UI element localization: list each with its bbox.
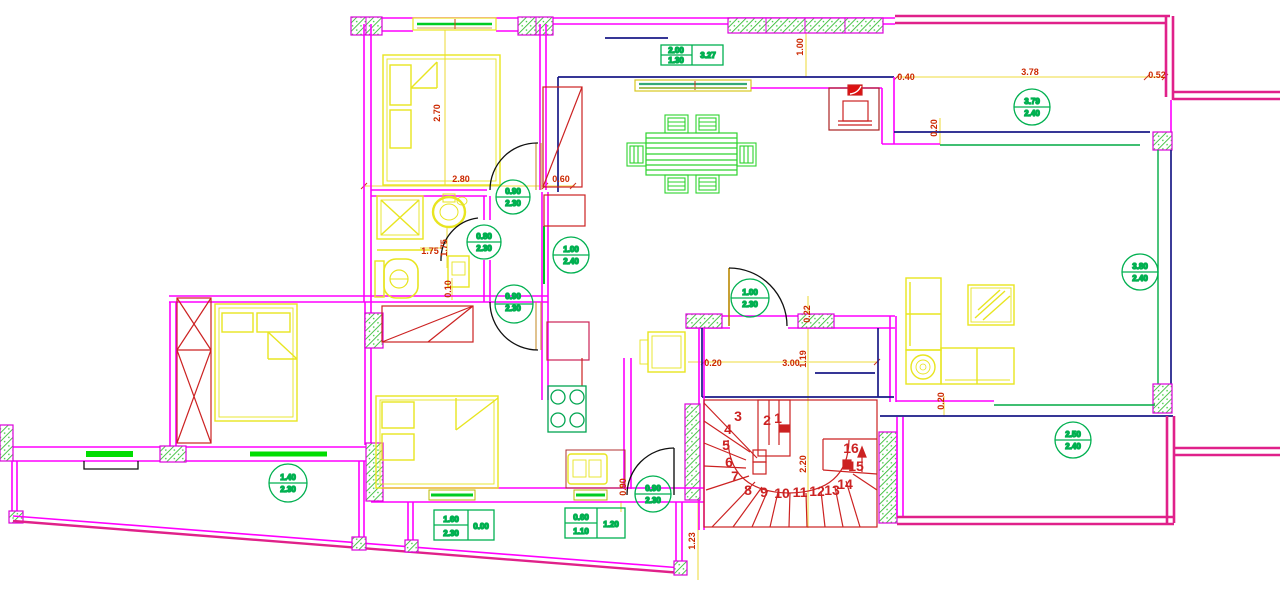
svg-text:1.23: 1.23 xyxy=(687,532,697,550)
svg-text:2.80: 2.80 xyxy=(452,174,470,184)
svg-text:1.20: 1.20 xyxy=(603,520,619,529)
svg-text:0.80: 0.80 xyxy=(476,232,492,241)
svg-text:2.30: 2.30 xyxy=(505,304,521,313)
svg-text:0.20: 0.20 xyxy=(936,392,946,410)
svg-text:2.30: 2.30 xyxy=(645,496,661,505)
svg-text:0.90: 0.90 xyxy=(645,484,661,493)
svg-text:1.30: 1.30 xyxy=(668,56,684,65)
svg-text:3.79: 3.79 xyxy=(1024,97,1040,106)
svg-text:4: 4 xyxy=(724,421,732,437)
svg-text:2.40: 2.40 xyxy=(1024,109,1040,118)
svg-text:2.30: 2.30 xyxy=(443,529,459,538)
svg-text:1.60: 1.60 xyxy=(443,515,459,524)
svg-text:1.00: 1.00 xyxy=(795,38,805,56)
svg-text:15: 15 xyxy=(848,458,864,474)
svg-text:0.20: 0.20 xyxy=(929,119,939,137)
svg-text:3.27: 3.27 xyxy=(700,51,716,60)
svg-text:2: 2 xyxy=(763,412,771,428)
svg-text:9: 9 xyxy=(760,484,768,500)
svg-text:3.78: 3.78 xyxy=(1021,67,1039,77)
svg-text:0.52: 0.52 xyxy=(1148,70,1166,80)
svg-text:12: 12 xyxy=(809,483,825,499)
svg-text:2.50: 2.50 xyxy=(1065,430,1081,439)
svg-text:1.00: 1.00 xyxy=(563,245,579,254)
svg-text:0.40: 0.40 xyxy=(897,72,915,82)
svg-text:7: 7 xyxy=(731,468,739,484)
svg-text:1.75: 1.75 xyxy=(439,239,449,257)
svg-text:2.70: 2.70 xyxy=(432,104,442,122)
svg-text:5: 5 xyxy=(722,437,730,453)
svg-text:0.10: 0.10 xyxy=(443,280,453,298)
svg-text:3: 3 xyxy=(734,408,742,424)
svg-text:1: 1 xyxy=(774,410,782,426)
svg-text:2.20: 2.20 xyxy=(798,455,808,473)
svg-text:2.00: 2.00 xyxy=(668,46,684,55)
svg-text:0.22: 0.22 xyxy=(802,305,812,323)
svg-text:0.90: 0.90 xyxy=(505,187,521,196)
svg-text:0.90: 0.90 xyxy=(505,292,521,301)
svg-text:2.40: 2.40 xyxy=(563,257,579,266)
svg-text:2.30: 2.30 xyxy=(742,300,758,309)
svg-text:8: 8 xyxy=(744,482,752,498)
svg-text:1.40: 1.40 xyxy=(280,473,296,482)
svg-text:2.30: 2.30 xyxy=(280,485,296,494)
svg-text:0.20: 0.20 xyxy=(704,358,722,368)
svg-text:3.80: 3.80 xyxy=(1132,262,1148,271)
svg-text:1.75: 1.75 xyxy=(421,246,439,256)
svg-text:1.10: 1.10 xyxy=(573,527,589,536)
svg-text:0.60: 0.60 xyxy=(573,513,589,522)
svg-text:2.30: 2.30 xyxy=(476,244,492,253)
svg-text:0.60: 0.60 xyxy=(552,174,570,184)
svg-text:11: 11 xyxy=(793,484,808,500)
svg-text:1.00: 1.00 xyxy=(742,288,758,297)
svg-text:2.40: 2.40 xyxy=(1132,274,1148,283)
svg-text:2.30: 2.30 xyxy=(505,199,521,208)
svg-text:16: 16 xyxy=(843,440,859,456)
svg-text:0.90: 0.90 xyxy=(618,478,628,496)
svg-text:0.00: 0.00 xyxy=(473,522,489,531)
svg-text:1.19: 1.19 xyxy=(798,350,808,368)
svg-text:14: 14 xyxy=(837,476,853,492)
svg-text:2.40: 2.40 xyxy=(1065,442,1081,451)
svg-text:10: 10 xyxy=(774,485,790,501)
